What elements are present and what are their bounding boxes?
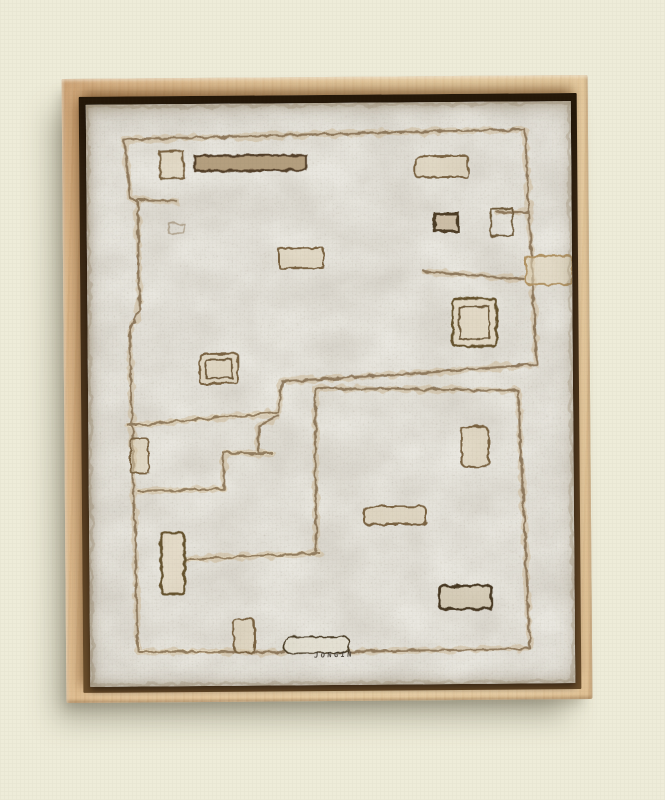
- artist-signature: JONGIN: [314, 650, 375, 660]
- picture-frame: JONGIN: [62, 75, 593, 703]
- canvas-speckle-texture: [86, 101, 576, 687]
- floater-frame-gap: JONGIN: [79, 93, 582, 693]
- canvas-tonal-blotches: [86, 101, 576, 687]
- wood-grain-overlay: [62, 75, 593, 703]
- canvas-edge-grime: [88, 103, 574, 685]
- incised-line-network: [124, 129, 539, 653]
- canvas-ground: [86, 101, 576, 687]
- relief-blocks: [128, 148, 575, 655]
- painting-artwork-svg: [86, 101, 576, 687]
- highlighted-grooves: [128, 412, 320, 652]
- painting-canvas: JONGIN: [86, 101, 576, 687]
- gallery-wall: JONGIN: [0, 0, 665, 800]
